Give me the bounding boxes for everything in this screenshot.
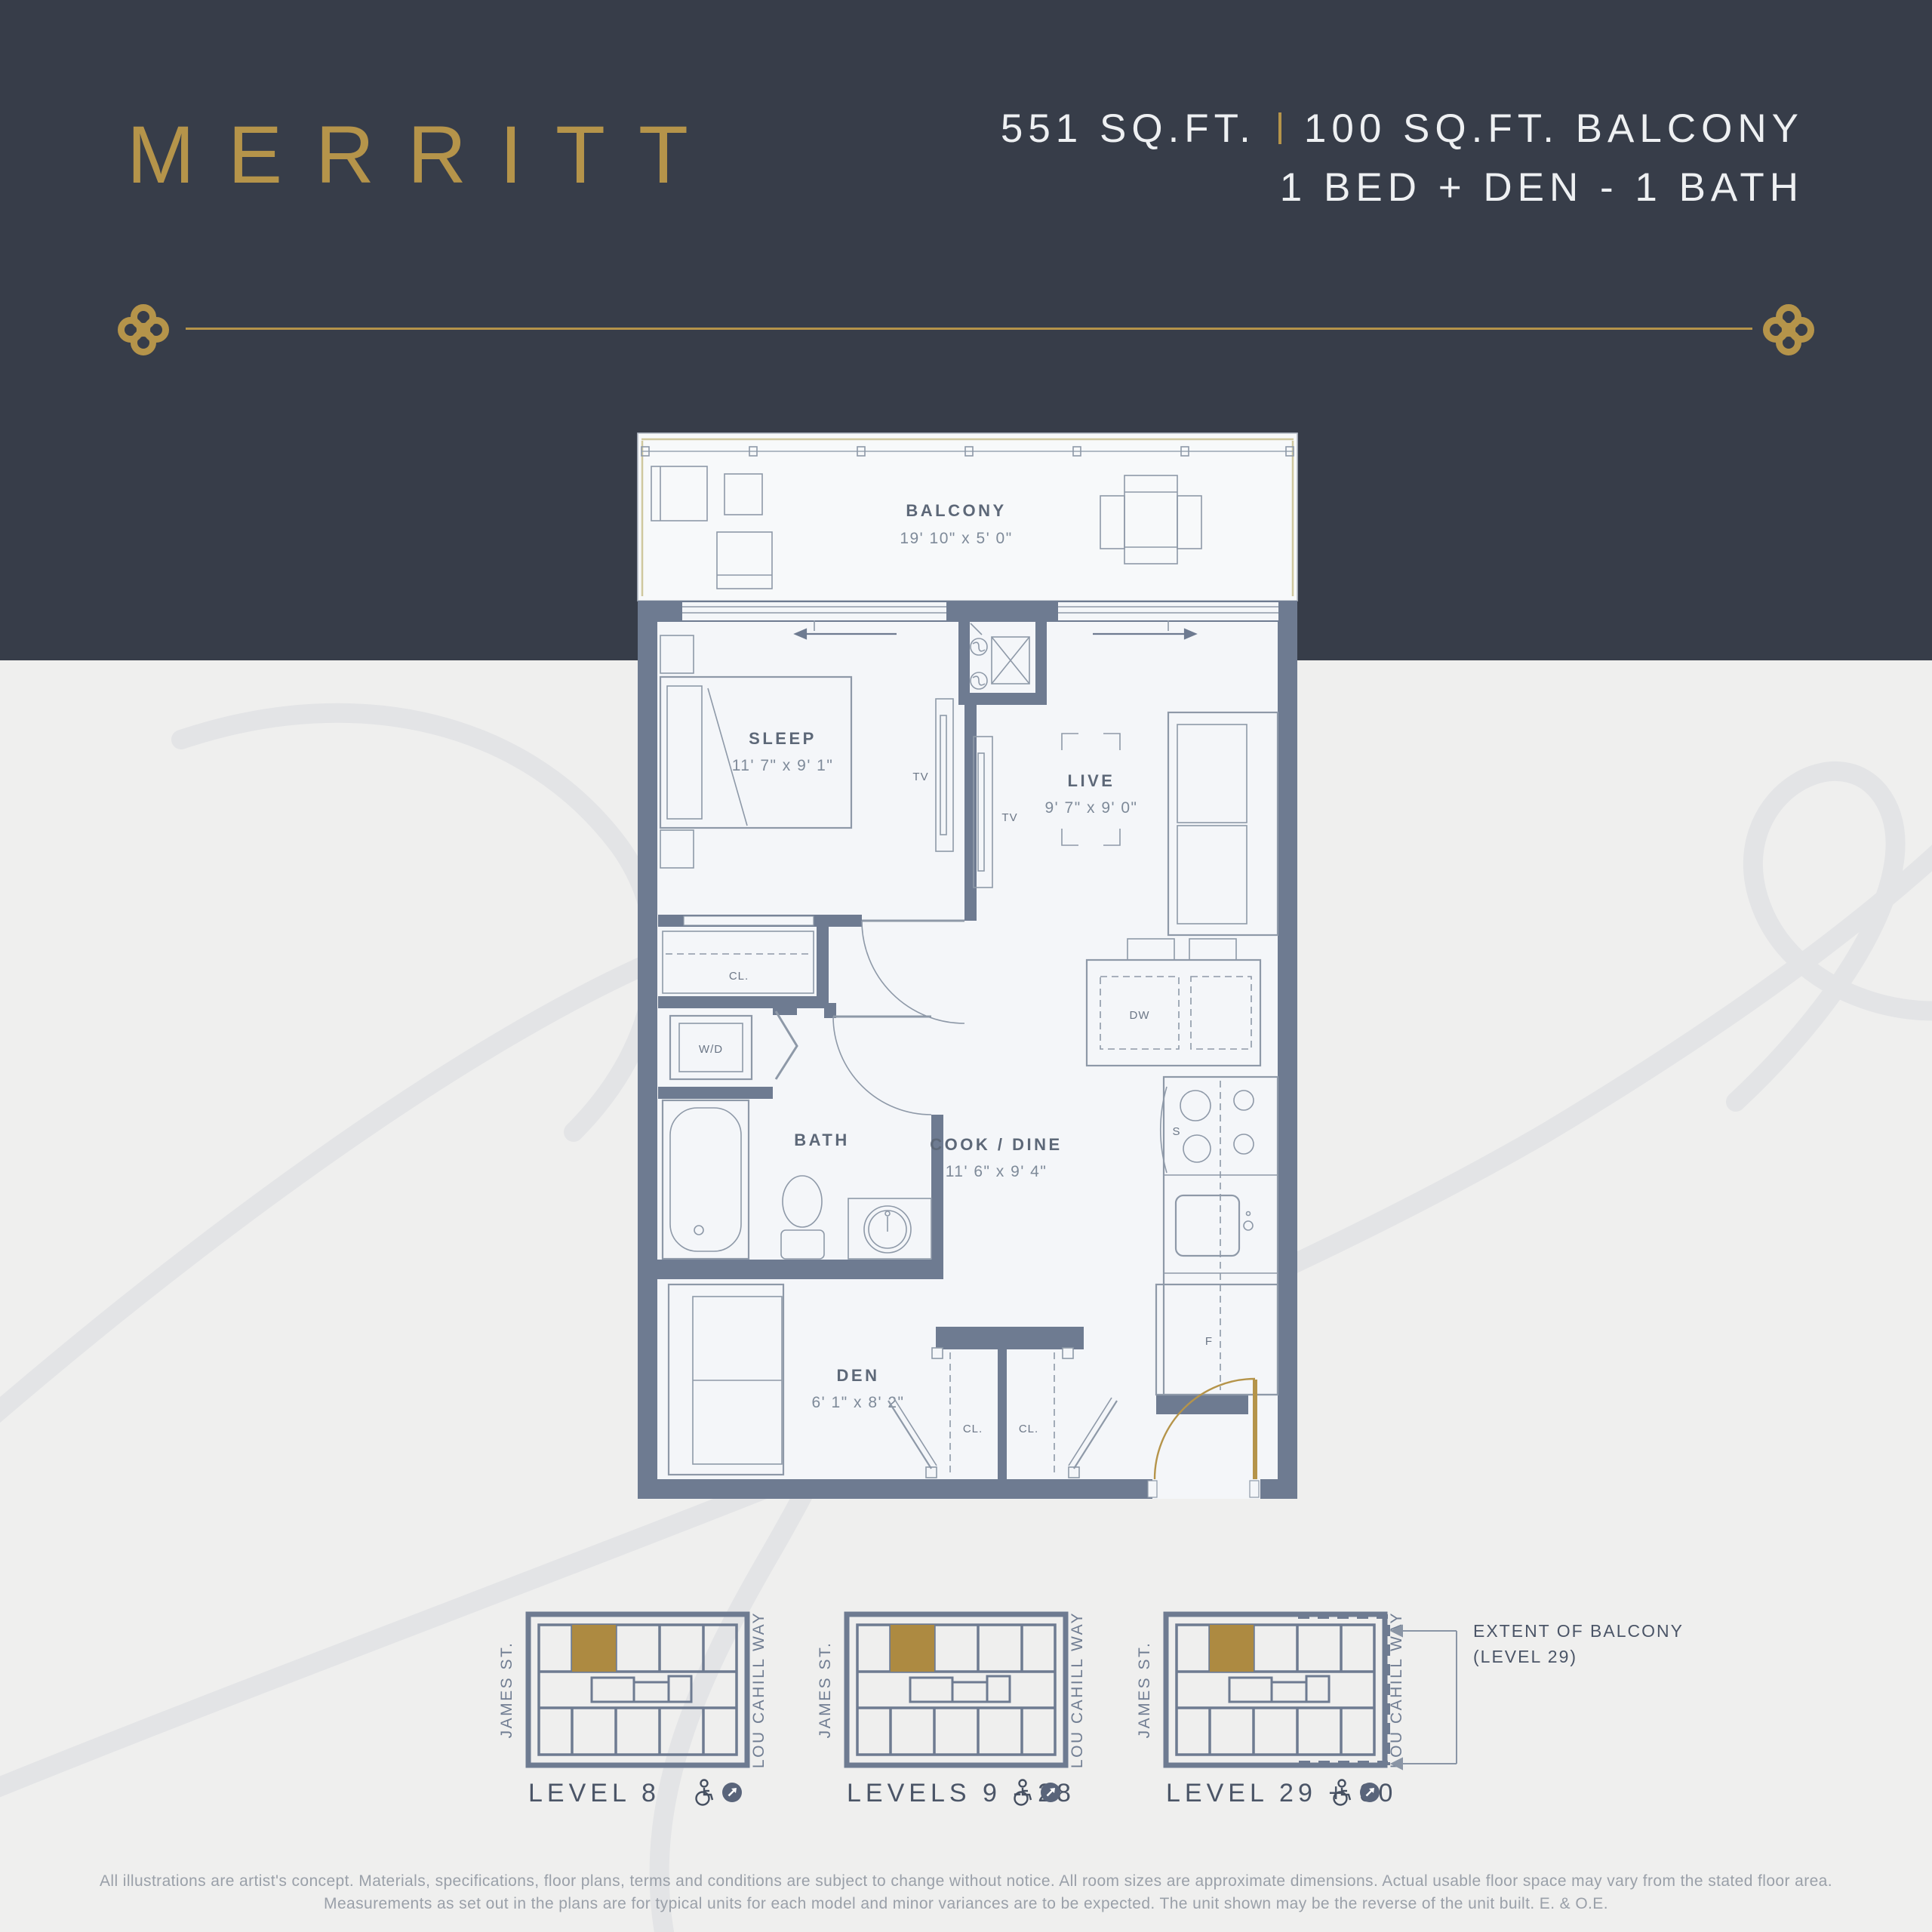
keyplan-label: LEVEL 8 xyxy=(528,1779,660,1807)
stats-line-2: 1 BED + DEN - 1 BATH xyxy=(1001,158,1804,217)
sleep-label: SLEEP xyxy=(749,729,817,748)
north-arrow-icon xyxy=(1041,1783,1060,1802)
balcony: BALCONY 19' 10" x 5' 0" xyxy=(638,433,1297,601)
street-label-left: JAMES ST. xyxy=(1136,1641,1153,1739)
live-label: LIVE xyxy=(1068,771,1115,790)
keyplan-strip: JAMES ST. LOU CAHILL WAY LEVEL 8 JAMES S… xyxy=(483,1604,1766,1864)
disclaimer-line-1: All illustrations are artist's concept. … xyxy=(0,1870,1932,1893)
gold-divider xyxy=(186,328,1752,330)
tv-label-2: TV xyxy=(1001,811,1017,824)
balcony-dims: 19' 10" x 5' 0" xyxy=(900,530,1012,547)
closet-label-2: CL. xyxy=(963,1423,983,1435)
wheelchair-icon xyxy=(697,1780,713,1805)
disclaimer-line-2: Measurements as set out in the plans are… xyxy=(0,1893,1932,1915)
page-title: MERRITT xyxy=(127,113,721,196)
balcony-note-line1: EXTENT OF BALCONY xyxy=(1473,1621,1684,1641)
unit-stats: 551 SQ.FT.100 SQ.FT. BALCONY 1 BED + DEN… xyxy=(1001,100,1804,217)
balcony-sqft: 100 SQ.FT. BALCONY xyxy=(1304,106,1804,151)
dishwasher-label: DW xyxy=(1130,1009,1150,1022)
quatrefoil-icon xyxy=(113,300,174,360)
closet-opening xyxy=(684,916,814,925)
north-arrow-icon xyxy=(722,1783,742,1802)
bath-label: BATH xyxy=(794,1131,849,1149)
quatrefoil-icon xyxy=(1758,300,1819,360)
live-dims: 9' 7" x 9' 0" xyxy=(1045,799,1138,817)
fridge-label: F xyxy=(1205,1335,1213,1348)
street-label-left: JAMES ST. xyxy=(498,1641,515,1739)
balcony-label: BALCONY xyxy=(906,501,1006,520)
street-label-left: JAMES ST. xyxy=(817,1641,834,1739)
den-dims: 6' 1" x 8' 2" xyxy=(812,1394,905,1411)
keyplan-level-29-30: JAMES ST. LOU CAHILL WAY LEVEL 29 + 30 E… xyxy=(1136,1611,1684,1807)
gold-separator xyxy=(1278,112,1281,144)
stats-line-1: 551 SQ.FT.100 SQ.FT. BALCONY xyxy=(1001,100,1804,158)
washer-dryer-label: W/D xyxy=(699,1043,723,1056)
cook-dine-label: COOK / DINE xyxy=(930,1135,1062,1154)
den-label: DEN xyxy=(837,1366,880,1385)
disclaimer: All illustrations are artist's concept. … xyxy=(0,1870,1932,1915)
floorplan-sheet: { "header": { "unit_name": "MERRITT", "a… xyxy=(0,0,1932,1932)
balcony-note-line2: (LEVEL 29) xyxy=(1473,1647,1577,1666)
tv-label-1: TV xyxy=(912,771,928,783)
keyplan-levels-9-28: JAMES ST. LOU CAHILL WAY LEVELS 9 - 28 xyxy=(817,1611,1086,1807)
closet-label-3: CL. xyxy=(1019,1423,1038,1435)
floorplan-drawing: BALCONY 19' 10" x 5' 0" xyxy=(635,432,1300,1518)
street-label-right: LOU CAHILL WAY xyxy=(1069,1611,1086,1768)
street-label-right: LOU CAHILL WAY xyxy=(750,1611,768,1768)
cook-dine-dims: 11' 6" x 9' 4" xyxy=(946,1163,1048,1180)
keyplan-level-8: JAMES ST. LOU CAHILL WAY LEVEL 8 xyxy=(498,1611,768,1807)
area-sqft: 551 SQ.FT. xyxy=(1001,106,1256,151)
north-arrow-icon xyxy=(1360,1783,1380,1802)
stove-label: S xyxy=(1172,1125,1180,1138)
sleep-dims: 11' 7" x 9' 1" xyxy=(732,757,834,774)
closet-label-1: CL. xyxy=(729,970,749,983)
